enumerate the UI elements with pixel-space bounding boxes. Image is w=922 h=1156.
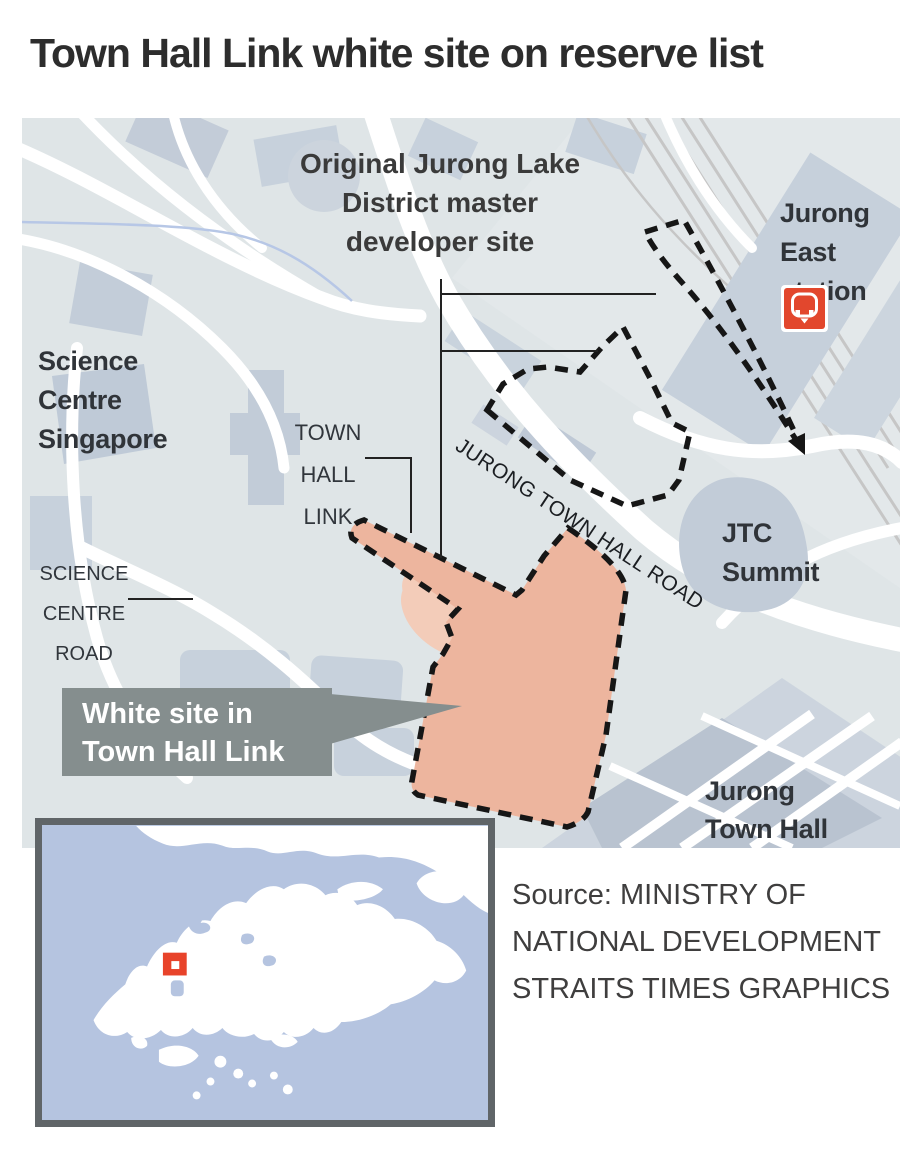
inset-map <box>35 818 495 1127</box>
label-science-centre: Science Centre Singapore <box>38 342 167 459</box>
map-area: Original Jurong Lake District master dev… <box>22 118 900 848</box>
label-jtc-summit: JTC Summit <box>722 514 819 592</box>
page-title: Town Hall Link white site on reserve lis… <box>30 30 910 77</box>
label-jurong-town-hall: Jurong Town Hall <box>705 772 828 848</box>
source-credit: Source: MINISTRY OF NATIONAL DEVELOPMENT… <box>512 872 902 1013</box>
callout-pointer <box>330 688 466 748</box>
infographic-page: { "title": "Town Hall Link white site on… <box>0 0 922 1156</box>
label-master-developer-site: Original Jurong Lake District master dev… <box>290 144 590 261</box>
label-science-centre-road: SCIENCE CENTRE ROAD <box>28 554 140 674</box>
mrt-train-icon <box>781 285 828 332</box>
jurong-location-marker <box>163 953 187 976</box>
singapore-map <box>42 825 488 1120</box>
label-town-hall-link: TOWN HALL LINK <box>278 412 378 538</box>
white-site-callout: White site in Town Hall Link <box>62 688 332 776</box>
